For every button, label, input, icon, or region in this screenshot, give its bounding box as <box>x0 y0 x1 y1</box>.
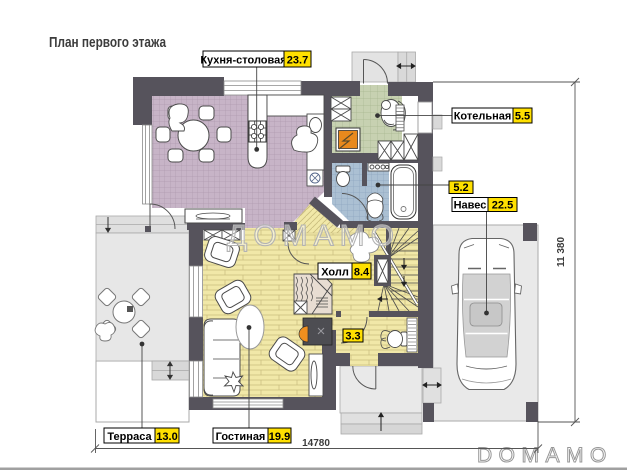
svg-text:14780: 14780 <box>302 438 330 449</box>
svg-text:22.5: 22.5 <box>492 200 513 212</box>
svg-text:3.3: 3.3 <box>345 331 360 343</box>
svg-text:DOMAMO: DOMAMO <box>477 444 613 467</box>
svg-text:План первого этажа: План первого этажа <box>49 35 167 51</box>
svg-text:8.4: 8.4 <box>354 267 370 279</box>
svg-text:ДОМАМО: ДОМАМО <box>227 220 400 253</box>
svg-text:23.7: 23.7 <box>287 55 308 67</box>
svg-text:Холл: Холл <box>321 267 349 279</box>
svg-text:5.5: 5.5 <box>515 111 530 123</box>
svg-text:Навес: Навес <box>454 200 487 212</box>
svg-text:Котельная: Котельная <box>454 111 512 123</box>
svg-text:11 380: 11 380 <box>556 237 567 267</box>
svg-text:13.0: 13.0 <box>156 431 177 443</box>
svg-text:Кухня-столовая: Кухня-столовая <box>200 55 286 67</box>
svg-text:Гостиная: Гостиная <box>216 431 266 443</box>
svg-text:5.2: 5.2 <box>453 182 468 194</box>
svg-text:Терраса: Терраса <box>107 431 152 443</box>
svg-text:19.9: 19.9 <box>269 431 290 443</box>
